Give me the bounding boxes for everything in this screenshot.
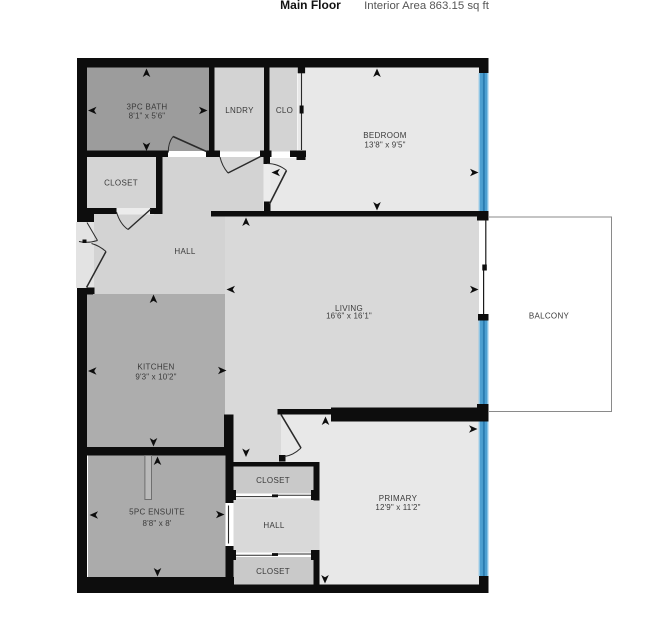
svg-text:PRIMARY: PRIMARY	[379, 494, 418, 503]
svg-text:8'1" x 5'6": 8'1" x 5'6"	[129, 112, 166, 121]
svg-text:HALL: HALL	[174, 247, 195, 256]
svg-text:13'8" x 9'5": 13'8" x 9'5"	[364, 141, 405, 150]
svg-text:12'9" x 11'2": 12'9" x 11'2"	[375, 503, 420, 512]
svg-text:5PC ENSUITE: 5PC ENSUITE	[129, 508, 185, 517]
svg-text:16'6" x 16'1": 16'6" x 16'1"	[326, 312, 372, 321]
svg-text:BALCONY: BALCONY	[529, 312, 570, 321]
svg-text:8'8" x 8': 8'8" x 8'	[142, 519, 171, 528]
svg-text:Main Floor: Main Floor	[280, 0, 341, 12]
svg-text:CLO: CLO	[276, 106, 293, 115]
svg-text:KITCHEN: KITCHEN	[137, 363, 174, 372]
svg-text:Interior Area 863.15 sq ft: Interior Area 863.15 sq ft	[364, 0, 490, 12]
svg-text:BEDROOM: BEDROOM	[363, 131, 406, 140]
svg-text:CLOSET: CLOSET	[104, 179, 138, 188]
svg-text:LNDRY: LNDRY	[225, 106, 254, 115]
svg-text:9'3" x 10'2": 9'3" x 10'2"	[135, 373, 176, 382]
svg-text:HALL: HALL	[263, 521, 284, 530]
svg-text:CLOSET: CLOSET	[256, 567, 290, 576]
svg-text:3PC BATH: 3PC BATH	[127, 103, 168, 112]
svg-text:CLOSET: CLOSET	[256, 476, 290, 485]
